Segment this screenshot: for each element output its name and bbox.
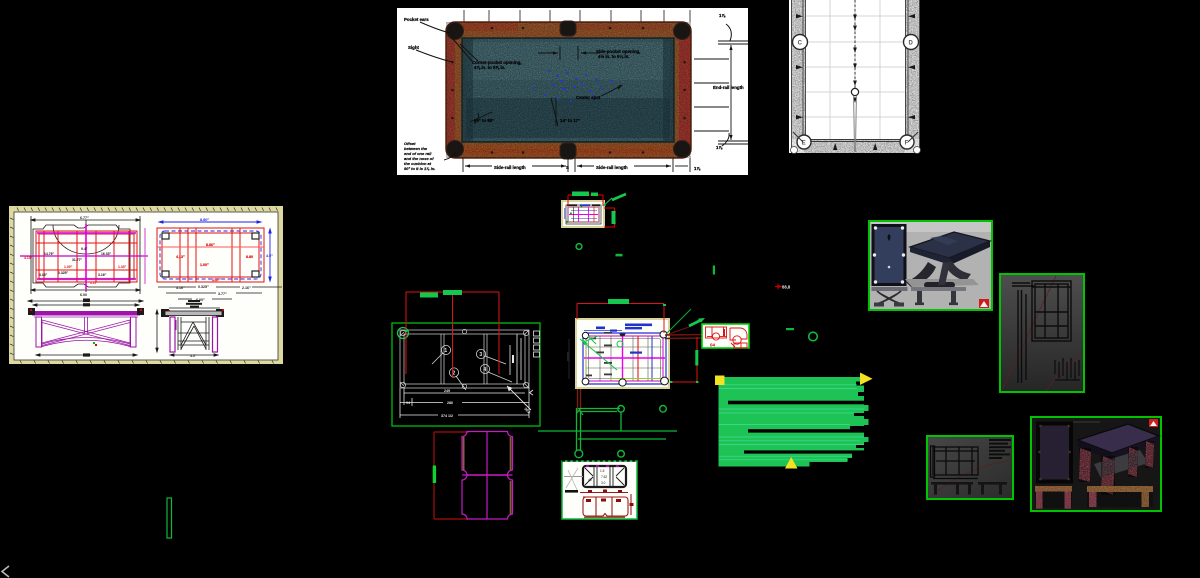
svg-text:D: D — [909, 40, 914, 46]
svg-text:S: S — [566, 165, 569, 170]
svg-text:31.77″: 31.77″ — [72, 258, 82, 262]
svg-text:3.16″: 3.16″ — [98, 273, 107, 277]
svg-text:4½ in. to 5⅛ in.: 4½ in. to 5⅛ in. — [598, 54, 629, 59]
svg-text:6.00: 6.00 — [80, 293, 87, 297]
svg-text:1.00″: 1.00″ — [64, 265, 73, 269]
svg-text:3.77″: 3.77″ — [218, 292, 227, 296]
svg-text:C: C — [798, 40, 803, 46]
svg-text:1.33″: 1.33″ — [118, 265, 127, 269]
svg-text:Center spot: Center spot — [576, 95, 601, 100]
svg-text:8.80: 8.80 — [246, 255, 253, 259]
svg-text:8.86″: 8.86″ — [206, 243, 215, 247]
svg-text:14° to 17°: 14° to 17° — [560, 118, 580, 123]
svg-text:3.0: 3.0 — [601, 481, 606, 485]
svg-text:3.16″: 3.16″ — [176, 286, 185, 290]
svg-text:04: 04 — [710, 343, 716, 348]
svg-text:4.5″: 4.5″ — [266, 254, 273, 258]
svg-text:Pocket ears: Pocket ears — [404, 17, 429, 22]
svg-text:6.77″: 6.77″ — [80, 216, 89, 220]
svg-text:1.17″: 1.17″ — [212, 278, 221, 282]
svg-text:1⅞: 1⅞ — [716, 145, 722, 150]
svg-text:1: 1 — [444, 348, 447, 354]
svg-text:8.80″: 8.80″ — [200, 218, 209, 222]
svg-text:16.33″: 16.33″ — [101, 252, 111, 256]
svg-text:94: 94 — [406, 401, 410, 405]
svg-text:1.00″: 1.00″ — [200, 263, 209, 267]
svg-text:3.16″: 3.16″ — [39, 273, 48, 277]
svg-text:4.13″: 4.13″ — [24, 256, 33, 260]
svg-text:14.76″: 14.76″ — [44, 252, 54, 256]
svg-text:374 1/2: 374 1/2 — [441, 414, 453, 418]
svg-text:4.13″: 4.13″ — [176, 255, 185, 259]
svg-text:7.62: 7.62 — [601, 475, 607, 479]
svg-text:45: 45 — [588, 478, 592, 482]
svg-text:249: 249 — [444, 389, 450, 393]
svg-text:1.5: 1.5 — [600, 469, 605, 473]
svg-text:9.4″: 9.4″ — [81, 247, 88, 251]
svg-text:4: 4 — [483, 367, 486, 373]
svg-text:0.325″: 0.325″ — [58, 271, 68, 275]
svg-text:88,8: 88,8 — [782, 285, 791, 290]
svg-text:4.5″: 4.5″ — [190, 354, 197, 358]
svg-text:1⅞: 1⅞ — [719, 13, 725, 18]
svg-text:Side-rail length: Side-rail length — [596, 165, 628, 170]
svg-text:90° to it is 1⅞ in.: 90° to it is 1⅞ in. — [404, 166, 435, 171]
svg-text:4⅞ in. to 5⅝ in.: 4⅞ in. to 5⅝ in. — [474, 65, 505, 70]
svg-text:0.325″: 0.325″ — [198, 285, 209, 289]
svg-text:3: 3 — [479, 352, 482, 358]
svg-text:1.17″: 1.17″ — [90, 281, 99, 285]
svg-text:1⅞: 1⅞ — [694, 166, 700, 171]
svg-text:End-rail length: End-rail length — [713, 85, 744, 90]
svg-text:Side-rail length: Side-rail length — [494, 165, 526, 170]
svg-text:280: 280 — [447, 401, 453, 405]
svg-text:2.16″: 2.16″ — [242, 286, 251, 290]
svg-text:Sight: Sight — [408, 45, 420, 50]
